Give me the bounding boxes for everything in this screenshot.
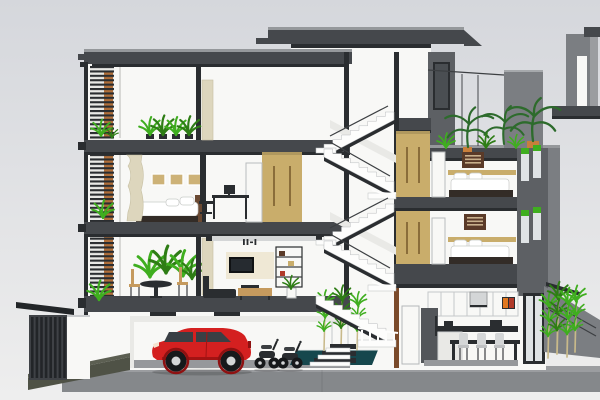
- window-plant-A2: [533, 145, 541, 151]
- console-leg: [268, 296, 270, 300]
- wheel-rim: [227, 357, 236, 366]
- clock-mark: [250, 242, 253, 244]
- chair-back: [200, 189, 203, 203]
- scooter-seat: [284, 347, 295, 351]
- gate-slat: [45, 317, 48, 378]
- garage-landing: [358, 340, 396, 347]
- back-door-mullion: [533, 296, 535, 361]
- gate-slat: [54, 317, 57, 378]
- clerestory-window: [170, 174, 183, 185]
- dining-chair-seat: [177, 282, 188, 285]
- wardrobe: [396, 131, 430, 197]
- stool-seat: [494, 345, 505, 348]
- table-pedestal: [154, 286, 158, 297]
- partition-wall-l4: [196, 66, 201, 140]
- shelf-item: [279, 251, 285, 256]
- bulkhead-side: [590, 34, 598, 116]
- balcony-tip-l3: [78, 224, 86, 232]
- car-taillight: [248, 341, 251, 348]
- beam-stub-2: [214, 312, 240, 316]
- turn-step: [326, 348, 350, 352]
- timber-column: [394, 280, 399, 368]
- curtain-l4: [202, 80, 213, 140]
- kitchen-tv-screen: [509, 298, 514, 308]
- window-plant-B2: [533, 207, 541, 213]
- beam-stub-1: [150, 312, 176, 316]
- bulkhead-cap: [584, 27, 600, 37]
- desk-top: [212, 195, 249, 198]
- clerestory-window: [152, 174, 165, 185]
- scooter-mirror: [276, 339, 278, 341]
- pavement-face: [62, 372, 600, 392]
- clock-mark: [255, 239, 257, 245]
- scooter-hub: [272, 361, 276, 365]
- scooter-mirror: [299, 341, 301, 343]
- scooter-hub: [281, 361, 285, 365]
- louver-slats: [90, 66, 114, 304]
- soundbar: [241, 285, 259, 288]
- scooter-seat: [261, 345, 272, 349]
- gate-slat: [36, 317, 39, 378]
- scooter-shadow: [254, 368, 280, 372]
- partition-wall-l2: [196, 236, 201, 296]
- neighbor-slab-underside: [552, 116, 600, 119]
- gate-frame: [29, 315, 67, 380]
- wardrobe-handle: [406, 222, 408, 254]
- desk-leg: [245, 198, 247, 219]
- architectural-section-viewport: [0, 0, 600, 400]
- window-A1: [521, 153, 529, 181]
- roof-underside: [92, 64, 348, 67]
- bedroom-curtain: [127, 155, 143, 221]
- light-strip-end: [206, 236, 212, 241]
- desk-leg: [213, 198, 215, 219]
- window-plant-A1: [521, 148, 529, 154]
- counter-top: [436, 326, 518, 332]
- gate-side-wall: [67, 317, 90, 379]
- neighbor-slab: [552, 106, 600, 116]
- wardrobe-handle: [273, 166, 275, 206]
- wardrobe-handle: [418, 222, 420, 254]
- facade-return: [548, 148, 560, 296]
- clock-mark: [247, 239, 249, 245]
- wardrobe-handle: [406, 147, 408, 183]
- wall-line-l3: [119, 152, 121, 222]
- bedroom-door: [432, 152, 445, 197]
- shelf-item: [280, 271, 285, 276]
- bedroom-door: [432, 218, 445, 264]
- chair-base: [200, 212, 212, 214]
- roof-bracket-2: [80, 62, 88, 67]
- stool-back: [459, 333, 468, 346]
- clock-mark: [243, 239, 245, 245]
- sofa-seat: [203, 289, 236, 298]
- stool-back: [477, 333, 486, 346]
- kitchen-floor: [424, 360, 518, 366]
- slab-level2: [84, 296, 350, 312]
- monitor-stand: [228, 194, 230, 197]
- dining-chair-back: [131, 269, 134, 286]
- wardrobe-shade: [396, 131, 430, 134]
- wall-line-l2: [119, 236, 121, 296]
- wardrobe: [396, 211, 430, 264]
- turn-step: [310, 362, 350, 366]
- wardrobe-handle: [418, 147, 420, 183]
- building: [78, 27, 580, 370]
- monitor: [224, 185, 235, 194]
- table-foot: [150, 296, 162, 298]
- wheel-rim: [172, 357, 181, 366]
- kitchen-tv-screen: [503, 298, 508, 308]
- stool-seat: [458, 345, 469, 348]
- wall-art: [462, 152, 484, 168]
- chair-seat: [199, 201, 213, 204]
- console-leg: [240, 296, 242, 300]
- hood-edge: [470, 305, 487, 307]
- tower-mid-slab: [394, 118, 431, 130]
- bed-pillow: [166, 199, 179, 206]
- gate-slat: [63, 317, 66, 378]
- roof-slab: [84, 52, 352, 64]
- roof-bracket-1: [78, 54, 90, 60]
- balcony-tip-l2: [78, 298, 86, 308]
- tower-roof-tip: [256, 38, 268, 44]
- tower-roof-slab: [268, 30, 464, 44]
- turn-step: [318, 355, 350, 359]
- car-pillar: [193, 332, 196, 342]
- ceiling-light-strip: [206, 236, 322, 241]
- counter-appliance: [490, 320, 502, 326]
- wall-art: [464, 214, 486, 230]
- study-door: [246, 163, 262, 222]
- kitchen-door: [402, 306, 419, 364]
- stool-seat: [476, 345, 487, 348]
- shelf-item: [288, 261, 294, 266]
- scooter-hub: [258, 361, 262, 365]
- wall-line-l4: [119, 66, 121, 138]
- stool-back: [495, 333, 504, 346]
- gate-slat: [49, 317, 52, 378]
- garage-ceiling-shade: [134, 316, 350, 322]
- scooter-body: [259, 351, 275, 358]
- wardrobe-shade: [262, 152, 302, 155]
- gate-slat: [59, 317, 62, 378]
- scooter-shadow: [277, 368, 303, 372]
- car-windows: [164, 332, 231, 342]
- slab-level4-underside: [84, 152, 350, 155]
- dining-chair-back: [179, 267, 182, 284]
- range-hood: [470, 292, 487, 307]
- bed-base: [136, 216, 198, 222]
- dining-chair-seat: [129, 284, 140, 287]
- bed-base: [449, 190, 513, 197]
- chair-post: [205, 204, 207, 213]
- slab-level3: [84, 222, 350, 234]
- tower-roof-underside: [291, 44, 431, 48]
- column-shade: [130, 316, 134, 368]
- media-console: [238, 288, 272, 296]
- window-plant-B1: [521, 210, 529, 216]
- gate-slat: [40, 317, 43, 378]
- window-A2: [533, 150, 541, 178]
- tv-screen: [231, 259, 252, 271]
- bed-base: [449, 257, 513, 264]
- bed-pillow: [180, 197, 194, 205]
- wardrobe: [262, 152, 302, 222]
- clerestory-window: [188, 174, 201, 185]
- counter-appliance: [444, 321, 453, 326]
- window-B2: [533, 212, 541, 240]
- balcony-tip-l4: [78, 142, 86, 150]
- bulkhead-window: [577, 56, 587, 112]
- slab-level4: [84, 140, 350, 152]
- window-B1: [521, 215, 529, 243]
- section-render: [0, 0, 600, 400]
- scooter-hub: [295, 361, 299, 365]
- gate-slat: [31, 317, 34, 378]
- wardrobe-handle: [289, 166, 291, 206]
